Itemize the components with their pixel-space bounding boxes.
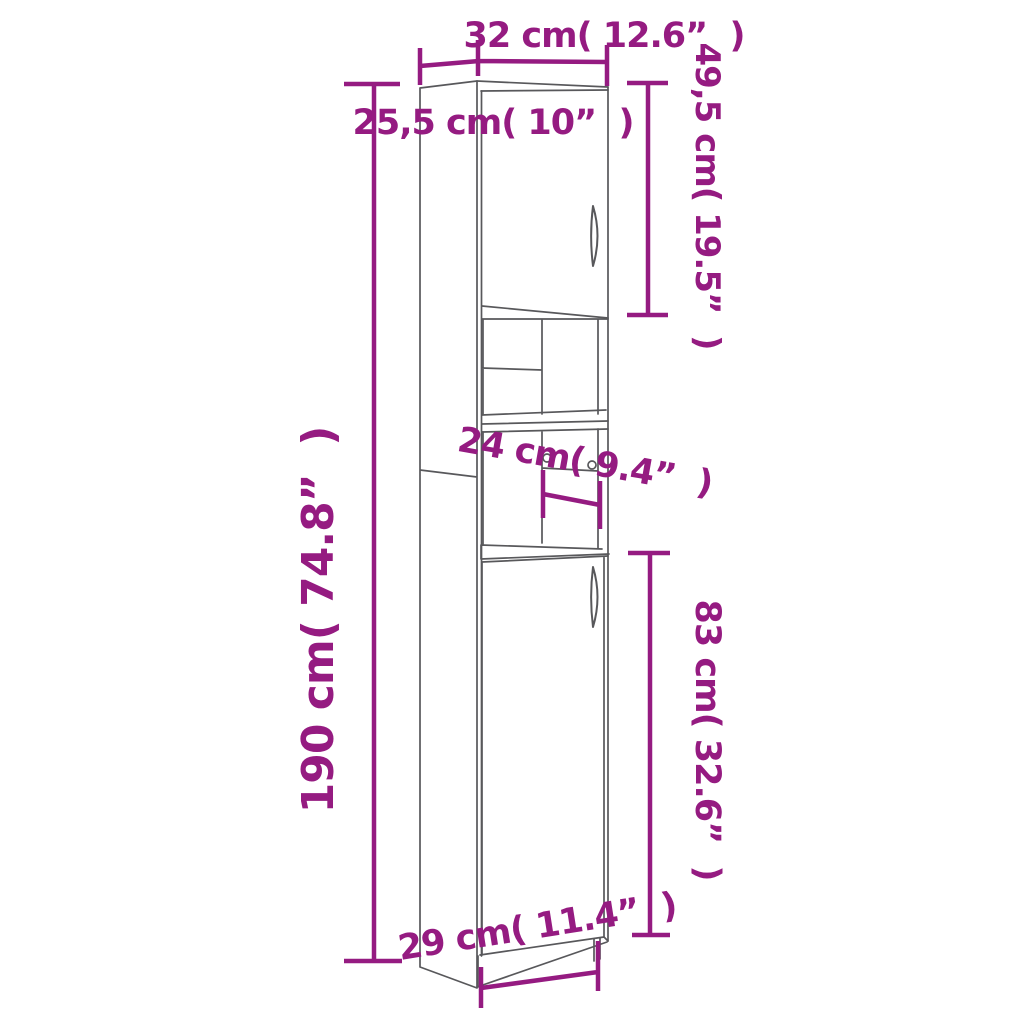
dim-lower-door-height-line <box>628 553 670 935</box>
open-shelf-upper <box>482 319 608 414</box>
lower-door-handle-icon <box>591 567 597 627</box>
dim-total-height-line <box>344 84 402 961</box>
dim-total-height: 190 cm( 74.8” ) <box>293 84 402 961</box>
upper-door <box>482 306 608 318</box>
dim-shelf-depth-label: 24 cm( 9.4” ) <box>455 420 716 504</box>
dim-upper-door-height: 49,5 cm( 19.5” ) <box>627 42 727 349</box>
lower-door <box>480 556 608 955</box>
dim-base-width-label: 29 cm( 11.4” ) <box>395 885 679 968</box>
diagram-canvas: 25,5 cm( 10” ) 32 cm( 12.6” ) 190 cm( 74… <box>0 0 1024 1024</box>
dim-lower-door-height-label: 83 cm( 32.6” ) <box>687 599 727 880</box>
dim-shelf-depth: 24 cm( 9.4” ) <box>455 420 716 529</box>
dim-upper-door-height-label: 49,5 cm( 19.5” ) <box>687 42 727 349</box>
cabinet-side-panel <box>420 81 482 988</box>
product-dimension-diagram: 25,5 cm( 10” ) 32 cm( 12.6” ) 190 cm( 74… <box>0 0 1024 1024</box>
dimension-annotations: 25,5 cm( 10” ) 32 cm( 12.6” ) 190 cm( 74… <box>293 16 745 1008</box>
dim-base-width: 29 cm( 11.4” ) <box>395 885 679 1008</box>
cabinet-top-face <box>477 81 608 91</box>
dim-lower-door-height: 83 cm( 32.6” ) <box>628 553 727 935</box>
dim-total-height-label: 190 cm( 74.8” ) <box>293 427 344 814</box>
upper-door-handle-icon <box>591 206 597 266</box>
cabinet-outline <box>420 81 609 988</box>
dim-top-depth-label: 25,5 cm( 10” ) <box>352 103 633 143</box>
